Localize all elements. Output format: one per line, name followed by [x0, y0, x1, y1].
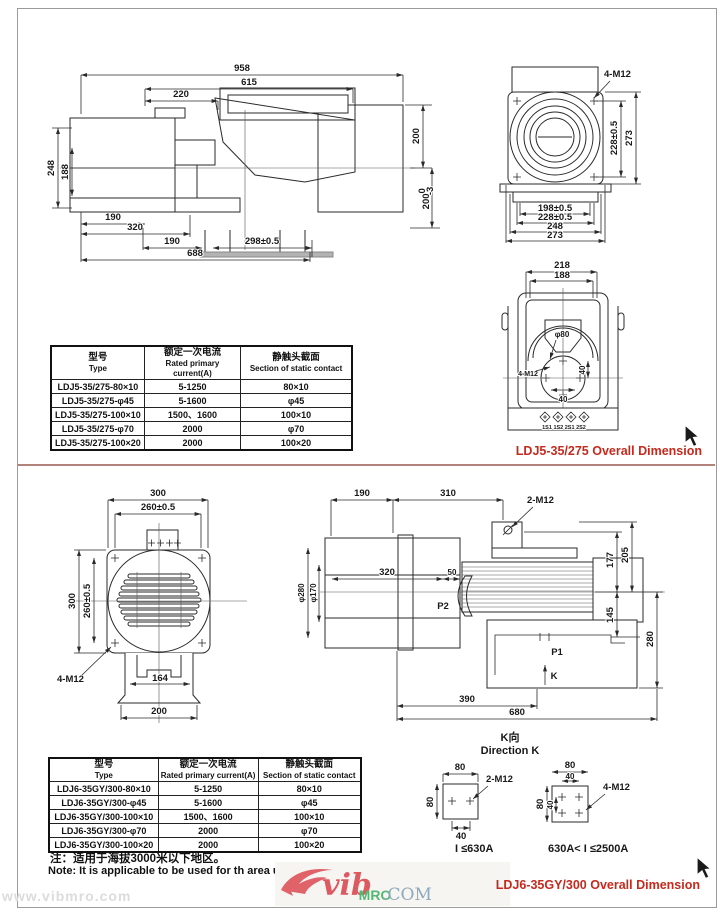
flange-body	[500, 67, 611, 202]
dim-phi280: φ280	[297, 583, 306, 603]
ldj5-flange-view-drawing: 4-M12 228±0.5 273 198±0.5 228±0.5 248 27…	[480, 55, 715, 255]
section1-title: LDJ5-35/275 Overall Dimension	[516, 444, 702, 458]
logo-graphic: vib MRO .COM	[275, 862, 510, 906]
dim-145: 145	[605, 606, 616, 623]
cell: φ45	[258, 796, 361, 810]
col-type: 型号Type	[51, 346, 144, 380]
section2-title: LDJ6-35GY/300 Overall Dimension	[496, 878, 700, 892]
dim-310: 310	[440, 488, 456, 499]
right-bushing-fins	[318, 105, 403, 212]
cell: 2000	[158, 824, 258, 838]
bushing-body	[320, 522, 665, 688]
col-contact: 静触头截面Section of static contact	[258, 758, 361, 782]
watermark-text: www.vibmro.com	[2, 888, 131, 904]
cell: LDJ6-35GY/300-100×10	[49, 810, 158, 824]
dim-220: 220	[173, 89, 189, 100]
dim-300l: 300	[67, 593, 78, 609]
col-type: 型号Type	[49, 758, 158, 782]
col-current: 额定一次电流Rated primary current(A)	[158, 758, 258, 782]
dim-k40b: 40	[456, 831, 467, 842]
cell: 80×10	[258, 782, 361, 796]
dim-164: 164	[152, 673, 169, 684]
dim-260t: 260±0.5	[141, 502, 176, 513]
dim-205: 205	[620, 546, 631, 563]
vibmro-logo: vib MRO .COM	[275, 862, 510, 906]
dim-248: 248	[46, 160, 57, 176]
bolt-label-4m12s: 4-M12	[518, 371, 538, 378]
bolt-label-4m12: 4-M12	[604, 69, 631, 80]
table-row: LDJ5-35/275-80×105-125080×10	[51, 380, 352, 394]
table-row: LDJ6-35GY/300-100×101500、1600100×10	[49, 810, 361, 824]
terminal-labels: 1S1 1S2 2S1 2S2	[542, 425, 586, 431]
dim-k80t: 80	[455, 762, 466, 773]
ldj5-side-view-drawing: 958 615 220 248 188 200 2000-3 190 320 1…	[40, 50, 470, 265]
dim-50: 50	[448, 568, 457, 577]
direction-k-title-zh: K向	[501, 730, 520, 744]
cell: φ70	[241, 422, 352, 436]
k-left-caption: I ≤630A	[455, 843, 494, 855]
dim-200-tol: 2000-3	[417, 187, 436, 210]
table-row: LDJ5-35/275-φ702000φ70	[51, 422, 352, 436]
cell: LDJ5-35/275-φ45	[51, 394, 144, 408]
dim-273v: 273	[624, 130, 635, 146]
dim-40b: 40	[559, 395, 568, 404]
bolt-label-4m12f: 4-M12	[57, 674, 84, 685]
cell: 5-1250	[158, 782, 258, 796]
dim-phi80: φ80	[555, 330, 570, 339]
dim-k40rt: 40	[566, 772, 575, 781]
dim-k80l: 80	[425, 797, 436, 808]
table-row: LDJ5-35/275-φ455-1600φ45	[51, 394, 352, 408]
ldj6-side-view-drawing: 190 310 2-M12 320 50 φ280 φ170 P2 P1 K 1…	[295, 483, 710, 738]
cell: 1500、1600	[144, 408, 240, 422]
cell: LDJ5-35/275-100×20	[51, 436, 144, 451]
dim-320b: 320	[379, 567, 395, 578]
section-divider	[18, 464, 715, 466]
dim-k40rl: 40	[546, 800, 555, 809]
cell: LDJ5-35/275-100×10	[51, 408, 144, 422]
direction-k-drawing: K向 Direction K 80 80 40 2-M12 I ≤630A 80…	[398, 725, 688, 860]
cell: 2000	[144, 436, 240, 451]
k-right-figure: 80 40 80 40 4-M12 630A< I ≤2500A	[535, 760, 630, 855]
ldj6-spec-table: 型号Type 额定一次电流Rated primary current(A) 静触…	[48, 757, 362, 853]
cell: LDJ6-35GY/300-φ45	[49, 796, 158, 810]
label-k: K	[551, 671, 558, 682]
end-body	[502, 288, 624, 430]
cell: LDJ6-35GY/300-80×10	[49, 782, 158, 796]
dim-200b: 200	[151, 706, 167, 717]
cell: φ45	[241, 394, 352, 408]
cell: 100×20	[241, 436, 352, 451]
dim-320: 320	[127, 222, 143, 233]
dim-190a: 190	[105, 212, 121, 223]
k-right-caption: 630A< I ≤2500A	[548, 843, 628, 855]
table-row: LDJ5-35/275-100×101500、1600100×10	[51, 408, 352, 422]
dim-273b: 273	[547, 230, 563, 241]
left-bushing-fins	[70, 118, 175, 212]
dim-298: 298±0.5	[245, 236, 280, 247]
bolt-label-2m12: 2-M12	[527, 495, 554, 506]
dim-300t: 300	[150, 488, 166, 499]
table-row: LDJ5-35/275-100×202000100×20	[51, 436, 352, 451]
cursor-icon	[682, 424, 708, 450]
cell: LDJ6-35GY/300-φ70	[49, 824, 158, 838]
ldj6-front-view-drawing: 300 260±0.5 300 260±0.5 4-M12 164 200	[42, 483, 322, 738]
dim-188: 188	[60, 164, 71, 180]
cell: 100×10	[241, 408, 352, 422]
dim-688: 688	[187, 248, 203, 259]
direction-k-title-en: Direction K	[481, 745, 540, 757]
cell: 5-1250	[144, 380, 240, 394]
dim-190: 190	[354, 488, 370, 499]
dim-40r: 40	[578, 365, 587, 374]
table-row: LDJ6-35GY/300-80×105-125080×10	[49, 782, 361, 796]
cell: LDJ5-35/275-80×10	[51, 380, 144, 394]
cell: LDJ5-35/275-φ70	[51, 422, 144, 436]
label-p2: P2	[437, 601, 449, 612]
table-header-row: 型号Type 额定一次电流Rated primary current(A) 静触…	[51, 346, 352, 380]
k-left-figure: 80 80 40 2-M12 I ≤630A	[425, 762, 513, 855]
dim-958: 958	[234, 63, 250, 74]
dim-188s: 188	[554, 270, 570, 281]
bolt-label-4m12k: 4-M12	[603, 782, 630, 793]
cell: 5-1600	[158, 796, 258, 810]
dim-k80rl: 80	[535, 799, 546, 810]
bolt-label-2m12k: 2-M12	[486, 774, 513, 785]
dim-phi170: φ170	[309, 583, 318, 603]
dim-260l: 260±0.5	[82, 583, 93, 618]
cell: 5-1600	[144, 394, 240, 408]
note-zh: 注：适用于海拔3000米以下地区。	[50, 850, 225, 866]
table-header-row: 型号Type 额定一次电流Rated primary current(A) 静触…	[49, 758, 361, 782]
center-body	[60, 88, 415, 257]
dim-280: 280	[645, 631, 656, 647]
ldj5-spec-table: 型号Type 额定一次电流Rated primary current(A) 静触…	[50, 345, 353, 451]
dim-177: 177	[605, 552, 616, 568]
dim-190b: 190	[164, 236, 180, 247]
front-body	[72, 523, 247, 723]
dim-k80rt: 80	[565, 760, 576, 771]
dim-200: 200	[411, 128, 422, 144]
dim-680: 680	[509, 707, 525, 718]
cell: 2000	[144, 422, 240, 436]
logo-com: .COM	[382, 885, 432, 905]
cell: φ70	[258, 824, 361, 838]
col-contact: 静触头截面Section of static contact	[241, 346, 352, 380]
col-current: 额定一次电流Rated primary current(A)	[144, 346, 240, 380]
dim-615: 615	[241, 77, 258, 88]
cursor-icon	[694, 856, 720, 882]
label-p1: P1	[551, 647, 563, 658]
cell: 80×10	[241, 380, 352, 394]
cell: 1500、1600	[158, 810, 258, 824]
dim-390: 390	[459, 694, 475, 705]
table-row: LDJ6-35GY/300-φ455-1600φ45	[49, 796, 361, 810]
cell: 100×10	[258, 810, 361, 824]
cell: 100×20	[258, 838, 361, 853]
table-row: LDJ6-35GY/300-φ702000φ70	[49, 824, 361, 838]
dim-228v: 228±0.5	[609, 120, 620, 155]
